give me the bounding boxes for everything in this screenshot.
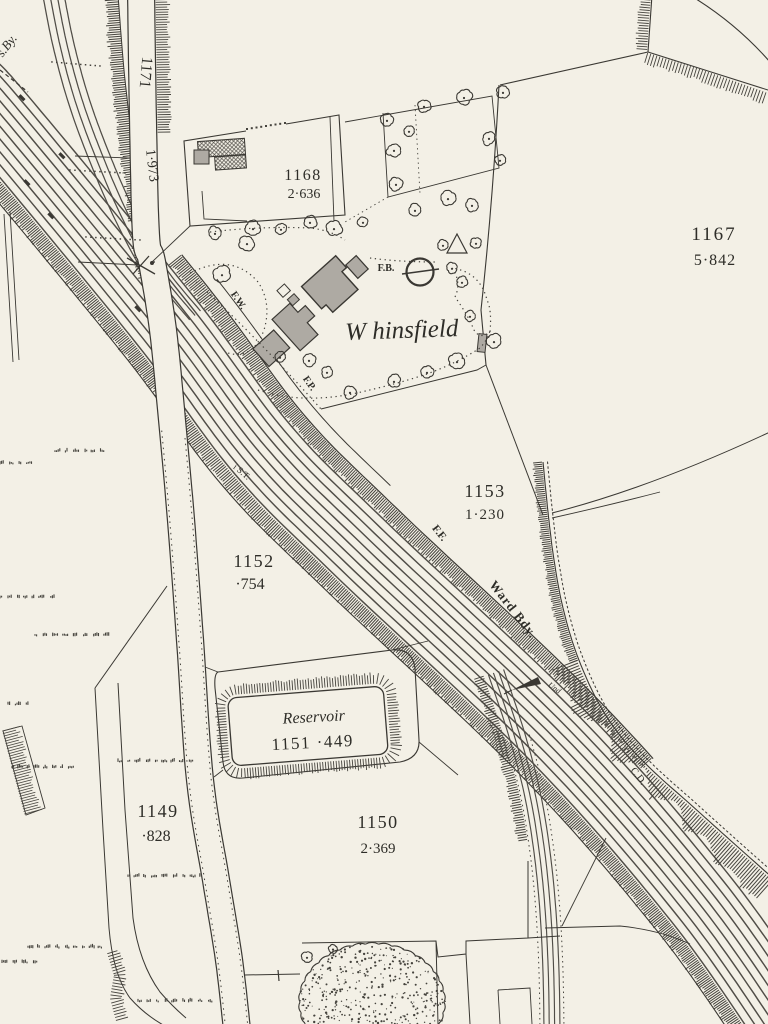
svg-text:2·636: 2·636: [288, 187, 321, 202]
svg-text:1168: 1168: [284, 167, 321, 184]
svg-text:1150: 1150: [357, 812, 398, 832]
svg-text:·754: ·754: [235, 576, 264, 593]
svg-text:5·842: 5·842: [694, 252, 736, 269]
svg-text:F.B.: F.B.: [378, 263, 395, 274]
svg-text:2·369: 2·369: [361, 841, 396, 857]
svg-text:1171: 1171: [136, 56, 156, 89]
svg-text:W hinsfield: W hinsfield: [345, 315, 460, 346]
svg-text:1153: 1153: [464, 481, 505, 501]
svg-text:Reservoir: Reservoir: [281, 707, 346, 727]
svg-text:·828: ·828: [141, 828, 170, 845]
svg-text:1149: 1149: [137, 801, 178, 821]
svg-text:1167: 1167: [691, 224, 736, 245]
svg-text:1152: 1152: [233, 551, 274, 571]
svg-text:1·230: 1·230: [465, 507, 505, 523]
